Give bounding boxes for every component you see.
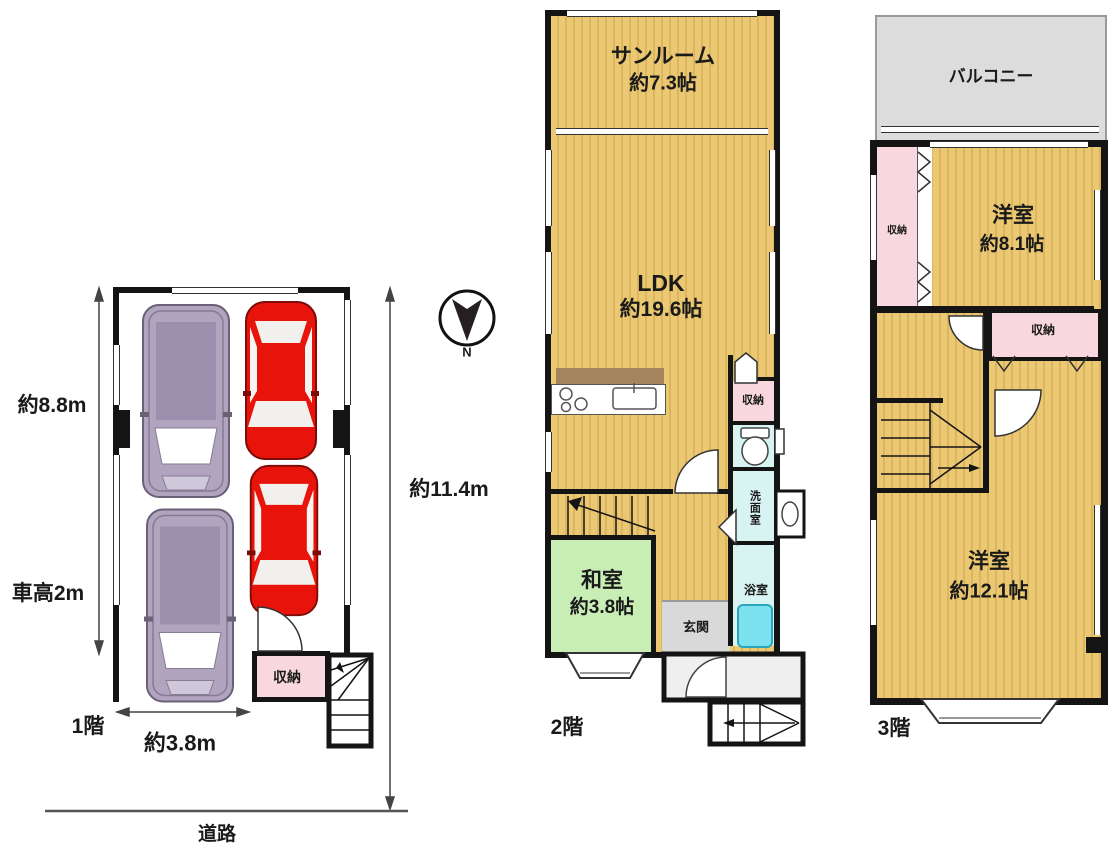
wall <box>877 398 943 403</box>
washitsu-room <box>551 540 651 652</box>
bedroom2-size: 約12.1帖 <box>950 581 1029 604</box>
car-sedan-icon <box>243 299 319 462</box>
garage-storage-label: 収納 <box>273 669 301 685</box>
kitchen-counter-back <box>556 368 664 384</box>
storage-3f-left-label: 収納 <box>887 225 907 237</box>
window <box>567 10 757 17</box>
storage-3f-mid-label: 収納 <box>1031 324 1055 338</box>
window <box>870 175 877 260</box>
compass-icon <box>440 291 494 345</box>
kitchen-counter <box>551 384 666 415</box>
window <box>1094 190 1101 280</box>
window <box>769 150 776 226</box>
window <box>113 345 120 405</box>
car-sedan-icon <box>247 463 321 618</box>
bedroom1-name: 洋室 <box>992 204 1034 228</box>
floor2-label: 2階 <box>551 716 584 740</box>
entrance-porch <box>664 654 803 700</box>
wall <box>733 541 774 545</box>
toilet-room <box>733 425 774 467</box>
window <box>545 432 552 472</box>
washbasin-icon <box>776 491 804 537</box>
floor1-label: 1階 <box>72 715 105 739</box>
ldk-size: 約19.6帖 <box>620 298 703 322</box>
wall <box>757 377 774 381</box>
window <box>545 150 552 226</box>
wall <box>877 488 983 493</box>
dimension-line-total-depth <box>386 288 394 809</box>
sunroom-name: サンルーム <box>611 45 715 69</box>
balcony-edge <box>881 126 1099 133</box>
dim-height-label: 約8.8m <box>18 394 87 418</box>
window <box>870 520 877 625</box>
car-van-icon <box>144 506 236 705</box>
car-height-label: 車高2m <box>12 582 84 606</box>
wall <box>733 421 774 425</box>
entrance-stairs <box>710 702 803 744</box>
wall-pier <box>1086 637 1103 653</box>
window <box>930 141 1088 148</box>
wall <box>657 489 673 494</box>
window <box>769 252 776 334</box>
window <box>545 252 552 334</box>
wall-pier <box>333 410 350 448</box>
washitsu-name: 和室 <box>581 569 623 593</box>
floor3-label: 3階 <box>878 717 911 741</box>
wall-pier <box>113 410 130 448</box>
window <box>556 128 768 135</box>
wall <box>551 535 656 540</box>
window <box>344 455 351 605</box>
window <box>1094 505 1101 635</box>
dimension-line-width <box>117 708 249 716</box>
washitsu-size: 約3.8帖 <box>570 597 634 619</box>
sunroom-size: 約7.3帖 <box>629 73 697 96</box>
bedroom1-size: 約8.1帖 <box>980 234 1044 256</box>
bedroom2-name: 洋室 <box>968 550 1010 574</box>
closet-gap <box>918 147 932 308</box>
ldk-name: LDK <box>637 270 684 296</box>
window <box>344 300 351 405</box>
washroom-label: 洗面室 <box>748 490 761 526</box>
car-van-icon <box>140 302 232 500</box>
dim-width-label: 約3.8m <box>144 730 216 755</box>
floor-plan-page: 約8.8m 車高2m 1階 約3.8m 収納 道路 約11.4m N サンルーム… <box>0 0 1120 853</box>
wall <box>728 355 733 646</box>
wall <box>551 489 661 494</box>
dimension-line-height <box>95 288 103 654</box>
window <box>113 455 120 605</box>
wall <box>651 540 656 652</box>
bathroom-label: 浴室 <box>744 584 768 598</box>
wall <box>716 489 730 494</box>
storage-2f-label: 収納 <box>742 395 764 408</box>
dim-total-depth-label: 約11.4m <box>409 478 488 502</box>
road-label: 道路 <box>198 824 236 846</box>
wall <box>733 467 774 471</box>
balcony-label: バルコニー <box>949 67 1034 87</box>
genkan-label: 玄関 <box>683 621 709 636</box>
window <box>172 287 298 294</box>
compass-n-label: N <box>462 346 471 361</box>
